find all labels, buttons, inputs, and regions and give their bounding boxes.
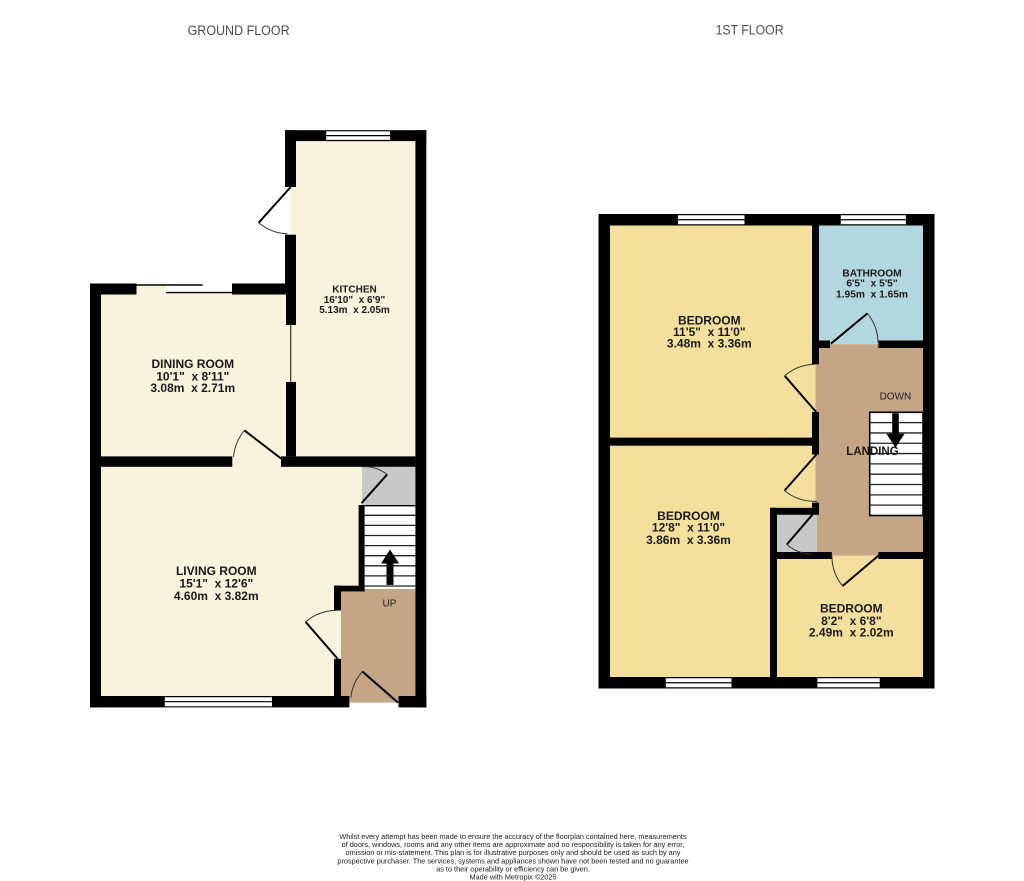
svg-text:3.86m x 3.36m: 3.86m x 3.36m [646, 533, 731, 547]
svg-text:6'5" x 5'5": 6'5" x 5'5" [846, 279, 897, 290]
svg-text:3.08m x 2.71m: 3.08m x 2.71m [150, 381, 235, 395]
svg-text:KITCHEN: KITCHEN [332, 284, 376, 295]
svg-text:LANDING: LANDING [846, 446, 898, 458]
svg-text:DOWN: DOWN [880, 391, 912, 402]
svg-text:UP: UP [383, 598, 397, 609]
svg-text:2.49m x 2.02m: 2.49m x 2.02m [809, 626, 894, 640]
svg-text:3.48m x 3.36m: 3.48m x 3.36m [667, 337, 752, 351]
svg-text:1.95m x 1.65m: 1.95m x 1.65m [836, 290, 908, 301]
svg-text:1ST FLOOR: 1ST FLOOR [716, 23, 784, 38]
svg-text:5.13m x 2.05m: 5.13m x 2.05m [319, 305, 390, 316]
svg-text:4.60m x 3.82m: 4.60m x 3.82m [174, 589, 259, 603]
svg-text:GROUND FLOOR: GROUND FLOOR [188, 23, 290, 38]
svg-text:Made with Metropix ©2025: Made with Metropix ©2025 [470, 873, 557, 881]
